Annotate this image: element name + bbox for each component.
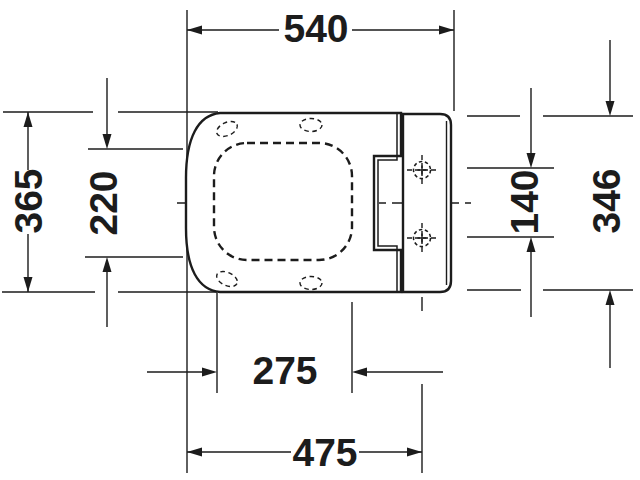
seat-body-outline <box>186 113 401 292</box>
mounting-plate-outline <box>403 114 451 292</box>
plate-length-label: 346 <box>585 168 628 233</box>
front-to-holes-label: 475 <box>292 431 357 474</box>
hole-spacing-label: 140 <box>503 169 546 234</box>
seat-opening-width-label: 275 <box>252 349 317 392</box>
overall-depth-label: 365 <box>7 168 50 233</box>
overall-width-label: 540 <box>283 7 348 50</box>
seat-opening-depth-label: 220 <box>82 170 125 235</box>
toilet-dimension-drawing: 540 365 220 140 346 275 47 <box>0 0 640 480</box>
drawing-canvas: 540 365 220 140 346 275 47 <box>0 0 640 480</box>
